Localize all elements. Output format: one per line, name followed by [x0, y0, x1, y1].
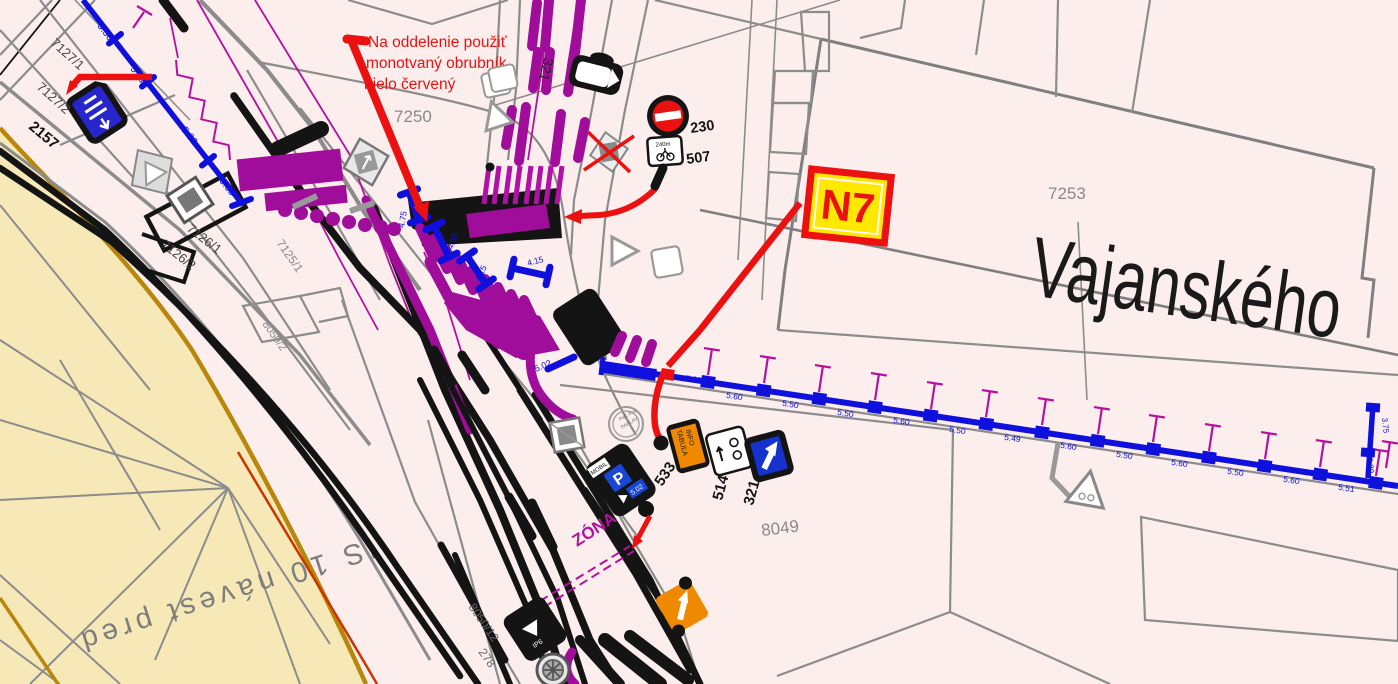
svg-text:Na oddelenie použiť: Na oddelenie použiť: [368, 34, 507, 51]
svg-text:7253: 7253: [1048, 184, 1086, 203]
svg-text:7250: 7250: [394, 107, 432, 126]
svg-text:bielo červený: bielo červený: [364, 76, 456, 93]
svg-text:3.20: 3.20: [1365, 457, 1376, 474]
svg-text:240m: 240m: [655, 142, 670, 149]
svg-text:507: 507: [685, 149, 711, 168]
svg-text:N7: N7: [819, 180, 877, 232]
svg-text:monotvaný obrubník: monotvaný obrubník: [366, 55, 507, 72]
svg-text:230: 230: [689, 118, 715, 137]
svg-text:3.75: 3.75: [1380, 417, 1391, 434]
